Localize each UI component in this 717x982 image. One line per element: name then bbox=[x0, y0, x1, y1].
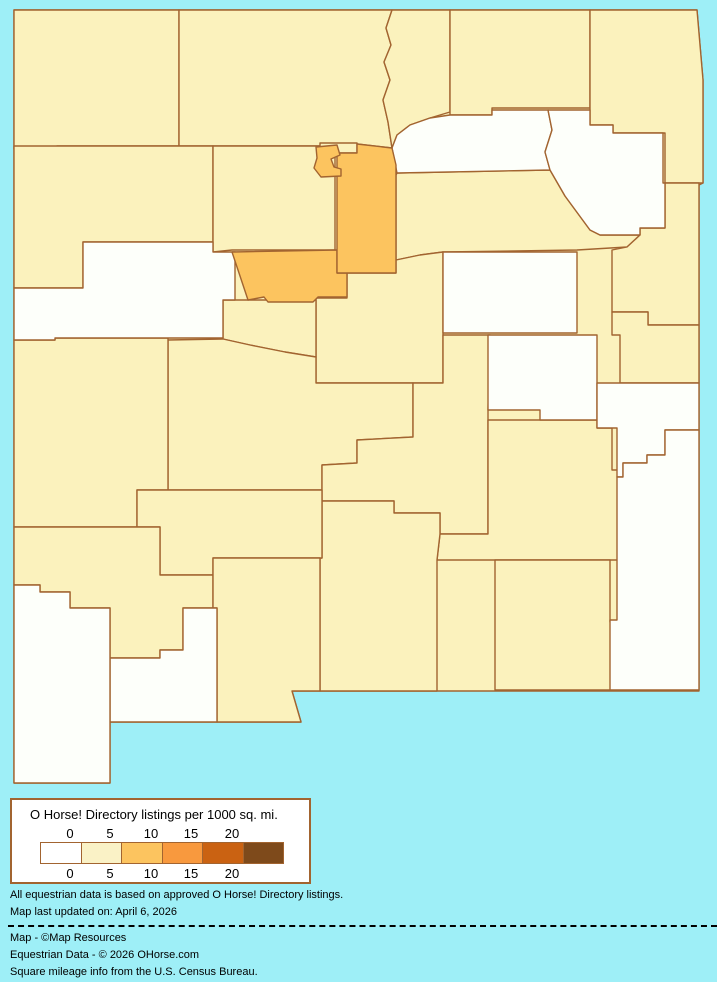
legend-swatch-0 bbox=[41, 843, 82, 863]
legend-ticks-bottom: 0 5 10 15 20 bbox=[12, 866, 309, 880]
legend-tick: 0 bbox=[50, 826, 90, 841]
legend-swatch-2 bbox=[122, 843, 163, 863]
legend-tick: 15 bbox=[171, 826, 211, 841]
legend-tick: 5 bbox=[90, 866, 130, 881]
legend-title: O Horse! Directory listings per 1000 sq.… bbox=[30, 807, 278, 822]
legend-swatch-1 bbox=[82, 843, 123, 863]
legend-tick: 0 bbox=[50, 866, 90, 881]
last-updated-text: Map last updated on: April 6, 2026 bbox=[10, 906, 177, 918]
legend-swatch-4 bbox=[203, 843, 244, 863]
legend-tick: 10 bbox=[131, 866, 171, 881]
legend-tick: 20 bbox=[212, 826, 252, 841]
county-bernalillo[interactable] bbox=[232, 250, 347, 302]
county-dona-ana[interactable] bbox=[213, 558, 320, 722]
legend: O Horse! Directory listings per 1000 sq.… bbox=[10, 798, 311, 884]
county-santa-fe[interactable] bbox=[337, 144, 396, 273]
county-hidalgo[interactable] bbox=[14, 585, 110, 783]
disclaimer-text: All equestrian data is based on approved… bbox=[10, 889, 343, 901]
county-lea[interactable] bbox=[610, 430, 699, 690]
county-guadalupe[interactable] bbox=[443, 252, 577, 333]
legend-tick: 10 bbox=[131, 826, 171, 841]
legend-tick: 20 bbox=[212, 866, 252, 881]
county-rio-arriba[interactable] bbox=[179, 10, 392, 148]
ohorse-county-map-page: { "legend": { "title": "O Horse! Directo… bbox=[0, 0, 717, 982]
dashed-separator bbox=[8, 925, 717, 927]
county-san-juan[interactable] bbox=[14, 10, 179, 149]
new-mexico-county-choropleth bbox=[0, 0, 717, 790]
legend-ticks-top: 0 5 10 15 20 bbox=[12, 826, 309, 840]
legend-swatch-3 bbox=[163, 843, 204, 863]
county-colfax[interactable] bbox=[450, 10, 590, 115]
county-otero[interactable] bbox=[320, 501, 440, 691]
county-eddy[interactable] bbox=[495, 560, 620, 690]
legend-tick: 15 bbox=[171, 866, 211, 881]
legend-color-ramp bbox=[40, 842, 284, 864]
map-credit-text: Map - ©Map Resources bbox=[10, 932, 126, 944]
data-credit-text: Equestrian Data - © 2026 OHorse.com bbox=[10, 949, 199, 961]
census-credit-text: Square mileage info from the U.S. Census… bbox=[10, 966, 258, 978]
county-sandoval[interactable] bbox=[213, 143, 357, 252]
legend-swatch-5 bbox=[244, 843, 284, 863]
legend-tick: 5 bbox=[90, 826, 130, 841]
county-de-baca[interactable] bbox=[488, 335, 597, 420]
